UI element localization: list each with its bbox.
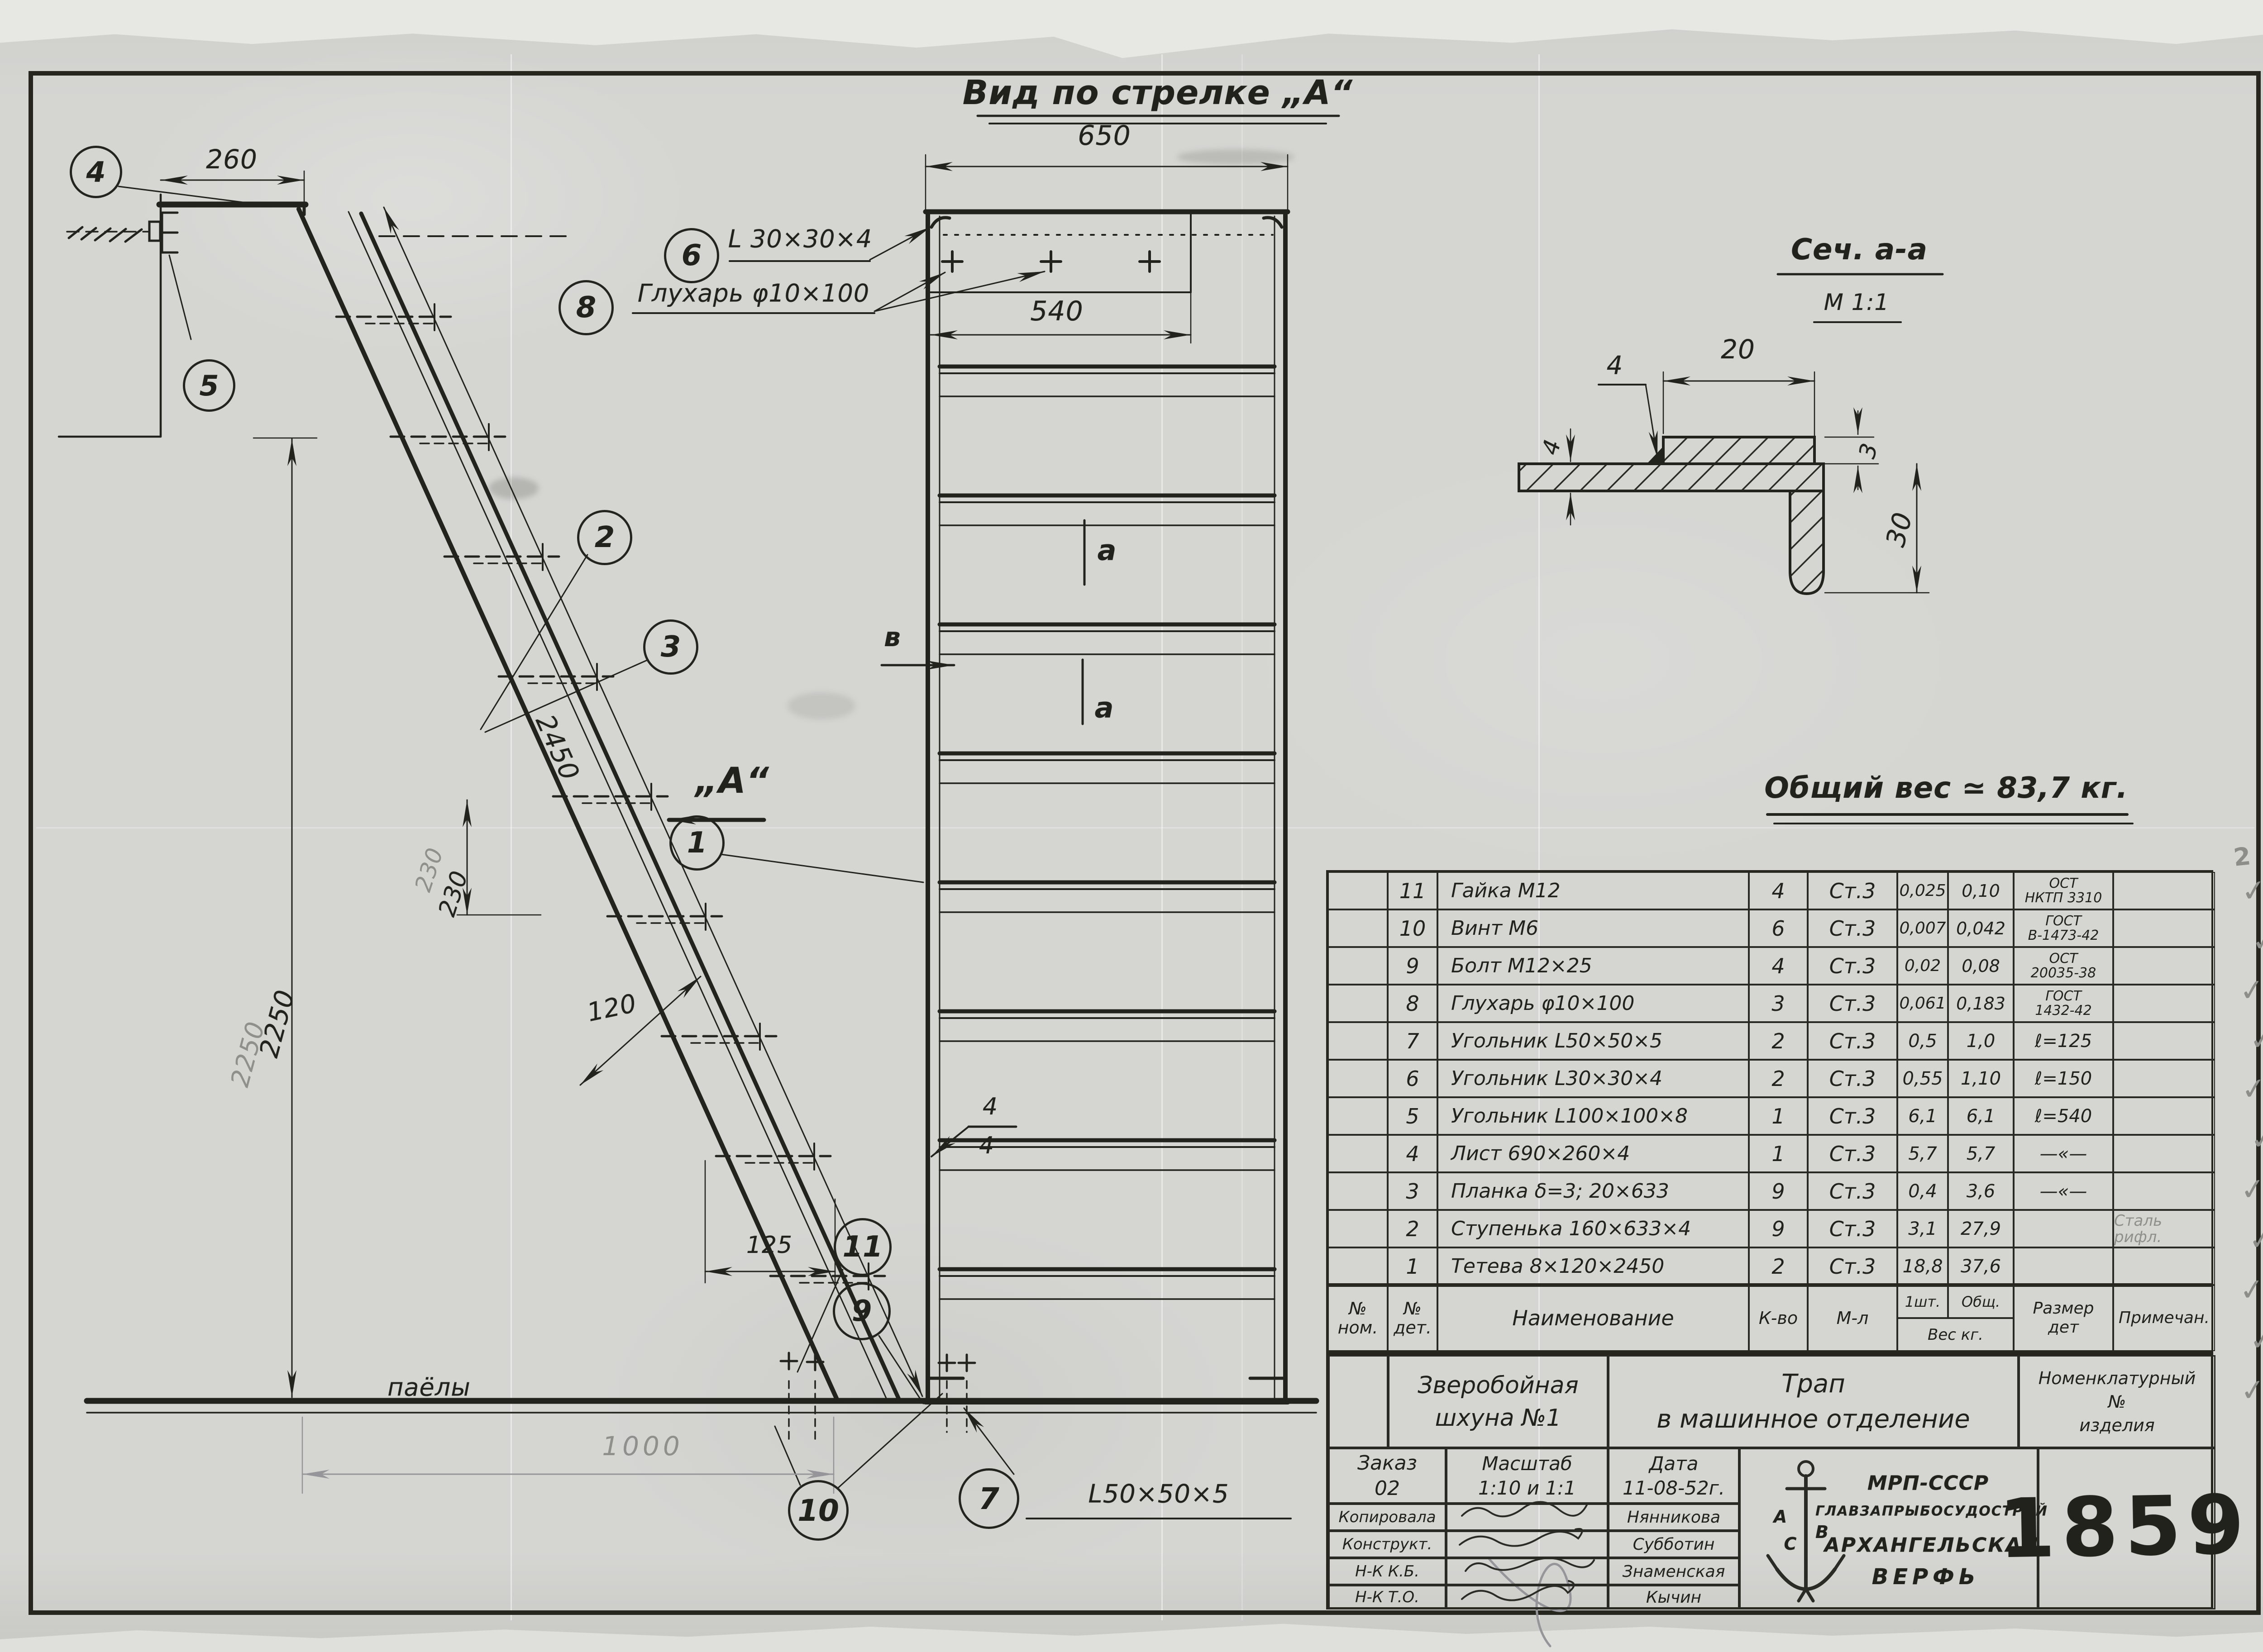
bom-cell: 4 xyxy=(1749,947,1808,985)
bom-header: №ном. №дет. Наименование К-во М-л 1шт. О… xyxy=(1326,1283,2213,1353)
view-arrow-label: „А“ xyxy=(695,761,769,801)
nomenclature-cell: Номенклатурный№изделия xyxy=(2019,1355,2215,1448)
bom-cell xyxy=(2014,1247,2113,1285)
bom-cell: 0,5 xyxy=(1897,1022,1948,1060)
bom-cell xyxy=(1328,1210,1388,1247)
bom-cell: 9 xyxy=(1388,947,1437,985)
bom-cell xyxy=(2113,985,2215,1022)
bom-cell: 9 xyxy=(1749,1210,1808,1247)
bom-cell: ОСТ20035-38 xyxy=(2014,947,2113,985)
bom-cell: ℓ=540 xyxy=(2014,1097,2113,1135)
bom-cell xyxy=(1328,1172,1388,1210)
bom-cell: Ст.3 xyxy=(1808,1060,1897,1097)
bom-cell: 4 xyxy=(1749,872,1808,909)
bom-cell xyxy=(1328,1247,1388,1285)
bom-cell: 18,8 xyxy=(1897,1247,1948,1285)
section-title: Сеч. а-а xyxy=(1791,233,1928,267)
balloon-10: 10 xyxy=(788,1480,849,1541)
mark-b: в xyxy=(884,622,901,652)
bom-cell: 7 xyxy=(1388,1022,1437,1060)
balloon-9: 9 xyxy=(833,1282,891,1340)
bom-cell: 3,1 xyxy=(1897,1210,1948,1247)
bom-cell: Ст.3 xyxy=(1808,909,1897,947)
sig-name: Знаменская xyxy=(1608,1558,1739,1585)
sig-signature xyxy=(1446,1558,1608,1585)
bom-cell: Ст.3 xyxy=(1808,1210,1897,1247)
bom-cell xyxy=(2113,1097,2215,1135)
bom-cell xyxy=(1328,947,1388,985)
bom-cell: 5 xyxy=(1388,1097,1437,1135)
bom-cell: Ст.3 xyxy=(1808,1097,1897,1135)
bom-cell xyxy=(2014,1210,2113,1247)
bom-cell: 4 xyxy=(1388,1135,1437,1172)
date-cell: Дата11-08-52г. xyxy=(1608,1448,1739,1504)
checkmark: ✓ xyxy=(2239,1171,2263,1208)
bom-cell: Тетева 8×120×2450 xyxy=(1437,1247,1749,1285)
bom-cell: 3 xyxy=(1749,985,1808,1022)
checkmark: ✓ xyxy=(2239,1070,2263,1107)
org-line-1: МРП-СССР xyxy=(1867,1472,1989,1495)
balloon-6: 6 xyxy=(664,228,719,283)
callout-6-label: L 30×30×4 xyxy=(728,225,873,253)
bom-cell: 5,7 xyxy=(1948,1135,2014,1172)
pencil-mark-2: 2 xyxy=(2232,842,2252,872)
balloon-3: 3 xyxy=(643,619,698,675)
bom-header-cell: Общ. xyxy=(1948,1285,2014,1318)
bom-cell: 9 xyxy=(1749,1172,1808,1210)
bom-cell: —«— xyxy=(2014,1172,2113,1210)
bom-cell: Ст.3 xyxy=(1808,872,1897,909)
bom-header-cell: Вес кг. xyxy=(1897,1318,2014,1351)
bom-cell: 0,10 xyxy=(1948,872,2014,909)
bom-cell: 0,55 xyxy=(1897,1060,1948,1097)
bill-of-materials: 11Гайка М124Ст.30,0250,10ОСТНКТП 3310 10… xyxy=(1326,870,2213,1287)
bom-cell: —«— xyxy=(2014,1135,2113,1172)
bom-cell: 6,1 xyxy=(1897,1097,1948,1135)
sig-name: Субботин xyxy=(1608,1531,1739,1558)
blueprint-sheet: Вид по стрелке „А“ 650 540 Сеч. а-а М 1:… xyxy=(0,0,2263,1652)
bom-cell xyxy=(1328,1060,1388,1097)
bom-cell: 0,007 xyxy=(1897,909,1948,947)
bom-cell: Ст.3 xyxy=(1808,1247,1897,1285)
dim-650: 650 xyxy=(1078,120,1131,152)
sig-role: Копировала xyxy=(1328,1504,1446,1531)
bom-cell: Угольник L30×30×4 xyxy=(1437,1060,1749,1097)
bom-cell: 6,1 xyxy=(1948,1097,2014,1135)
bom-cell: 0,02 xyxy=(1897,947,1948,985)
logo-letter-v: В xyxy=(1815,1522,1829,1542)
bom-header-cell: К-во xyxy=(1749,1285,1808,1351)
balloon-1: 1 xyxy=(669,815,725,871)
sig-role: Н-К К.Б. xyxy=(1328,1558,1446,1585)
callout-8-label: Глухарь φ10×100 xyxy=(638,279,870,308)
org-line-4: ВЕРФЬ xyxy=(1872,1564,1980,1590)
bom-cell: Ст.3 xyxy=(1808,1172,1897,1210)
bom-cell: 2 xyxy=(1388,1210,1437,1247)
bom-cell xyxy=(2113,947,2215,985)
dim-4-leader: 4 xyxy=(1607,351,1623,381)
balloon-7: 7 xyxy=(959,1468,1019,1529)
bom-cell xyxy=(1328,1022,1388,1060)
checkmark: ✓ xyxy=(2238,971,2263,1009)
bom-cell xyxy=(2113,1247,2215,1285)
dim-20: 20 xyxy=(1721,334,1755,365)
bom-cell: Угольник L100×100×8 xyxy=(1437,1097,1749,1135)
balloon-5: 5 xyxy=(183,359,235,412)
bom-cell: ℓ=150 xyxy=(2014,1060,2113,1097)
dim-125: 125 xyxy=(746,1232,793,1259)
bom-cell: 11 xyxy=(1388,872,1437,909)
dim-1000-pencil: 1000 xyxy=(602,1431,683,1462)
section-scale: М 1:1 xyxy=(1824,289,1890,315)
weld-note-bottom: 4 xyxy=(979,1132,994,1159)
bom-cell: 37,6 xyxy=(1948,1247,2014,1285)
bom-cell: 6 xyxy=(1749,909,1808,947)
bom-cell xyxy=(1328,985,1388,1022)
bom-cell xyxy=(2113,1172,2215,1210)
bom-header-cell: М-л xyxy=(1808,1285,1897,1351)
bom-cell: 2 xyxy=(1749,1060,1808,1097)
bom-cell: Гайка М12 xyxy=(1437,872,1749,909)
bom-cell: 0,042 xyxy=(1948,909,2014,947)
bom-cell: 0,061 xyxy=(1897,985,1948,1022)
checkmark: ✓ xyxy=(2239,1371,2263,1409)
sig-role: Конструкт. xyxy=(1328,1531,1446,1558)
section-mark-a1: a xyxy=(1098,534,1117,567)
bom-header-cell: Примечан. xyxy=(2113,1285,2215,1351)
bom-cell: 0,4 xyxy=(1897,1172,1948,1210)
bom-cell: Винт М6 xyxy=(1437,909,1749,947)
drawing-number: 1859 xyxy=(1998,1478,2252,1577)
bom-header-cell: №ном. xyxy=(1328,1285,1388,1351)
weld-note-top: 4 xyxy=(983,1093,998,1120)
bom-cell: 1 xyxy=(1749,1135,1808,1172)
bom-cell xyxy=(2113,1135,2215,1172)
floor-plates-label: паёлы xyxy=(387,1373,471,1402)
bom-cell: 1 xyxy=(1749,1097,1808,1135)
bom-cell-pencil-note: Сталь рифл. xyxy=(2113,1210,2215,1247)
bom-cell xyxy=(1328,909,1388,947)
bom-cell: Ст.3 xyxy=(1808,1022,1897,1060)
bom-cell: 1 xyxy=(1388,1247,1437,1285)
bom-cell xyxy=(2113,1022,2215,1060)
bom-cell: ГОСТ1432-42 xyxy=(2014,985,2113,1022)
bom-cell: ℓ=125 xyxy=(2014,1022,2113,1060)
section-mark-a2: a xyxy=(1095,691,1114,724)
bom-cell: Ступенька 160×633×4 xyxy=(1437,1210,1749,1247)
sig-name: Нянникова xyxy=(1608,1504,1739,1531)
bom-cell: Ст.3 xyxy=(1808,985,1897,1022)
bom-cell: Ст.3 xyxy=(1808,1135,1897,1172)
bom-cell: 1,0 xyxy=(1948,1022,2014,1060)
bom-cell: 27,9 xyxy=(1948,1210,2014,1247)
drawing-title: Трапв машинное отделение xyxy=(1608,1355,2019,1448)
balloon-8: 8 xyxy=(559,280,614,335)
logo-letter-a: А xyxy=(1774,1507,1787,1527)
bom-cell: Планка δ=3; 20×633 xyxy=(1437,1172,1749,1210)
sig-role: Н-К Т.О. xyxy=(1328,1585,1446,1609)
bom-cell xyxy=(1328,1135,1388,1172)
balloon-2: 2 xyxy=(577,510,632,565)
bom-cell: Болт М12×25 xyxy=(1437,947,1749,985)
bom-cell: 2 xyxy=(1749,1247,1808,1285)
bom-cell: 2 xyxy=(1749,1022,1808,1060)
bom-cell: ОСТНКТП 3310 xyxy=(2014,872,2113,909)
bom-cell: Ст.3 xyxy=(1808,947,1897,985)
total-weight-note: Общий вес ≃ 83,7 кг. xyxy=(1764,771,2128,805)
bom-cell xyxy=(1328,872,1388,909)
bom-header-cell: Размердет xyxy=(2014,1285,2113,1351)
bom-cell: Глухарь φ10×100 xyxy=(1437,985,1749,1022)
bom-cell: 6 xyxy=(1388,1060,1437,1097)
sig-name: Кычин xyxy=(1608,1585,1739,1609)
bom-cell: 5,7 xyxy=(1897,1135,1948,1172)
bom-header-cell: №дет. xyxy=(1388,1285,1437,1351)
order-cell: Заказ02 xyxy=(1328,1448,1446,1504)
bom-cell xyxy=(1328,1097,1388,1135)
bom-cell: 10 xyxy=(1388,909,1437,947)
bom-cell xyxy=(2113,909,2215,947)
sig-signature xyxy=(1446,1531,1608,1558)
bom-cell: Лист 690×260×4 xyxy=(1437,1135,1749,1172)
bom-cell: 0,183 xyxy=(1948,985,2014,1022)
bom-cell xyxy=(2113,872,2215,909)
bom-header-cell: Наименование xyxy=(1437,1285,1749,1351)
bom-cell: 1,10 xyxy=(1948,1060,2014,1097)
project-name: Зверобойнаяшхуна №1 xyxy=(1388,1355,1608,1448)
sig-signature xyxy=(1446,1585,1608,1609)
checkmark: ✓ xyxy=(2238,1271,2263,1308)
scale-cell: Масштаб1:10 и 1:1 xyxy=(1446,1448,1608,1504)
dim-540: 540 xyxy=(1030,295,1084,327)
checkmark: ✓ xyxy=(2239,872,2263,909)
bom-cell xyxy=(2113,1060,2215,1097)
bom-cell: 3 xyxy=(1388,1172,1437,1210)
view-a-title: Вид по стрелке „А“ xyxy=(963,73,1353,112)
dim-260: 260 xyxy=(206,144,258,175)
callout-7-label: L50×50×5 xyxy=(1088,1480,1229,1509)
bom-cell: 3,6 xyxy=(1948,1172,2014,1210)
title-block-cell xyxy=(1328,1355,1388,1448)
bom-cell: 0,08 xyxy=(1948,947,2014,985)
balloon-11: 11 xyxy=(834,1218,892,1276)
bom-cell: 0,025 xyxy=(1897,872,1948,909)
bom-cell: 8 xyxy=(1388,985,1437,1022)
bom-cell: ГОСТВ-1473-42 xyxy=(2014,909,2113,947)
sig-signature xyxy=(1446,1504,1608,1531)
logo-letter-s: С xyxy=(1784,1534,1797,1554)
bom-cell: Угольник L50×50×5 xyxy=(1437,1022,1749,1060)
bom-header-cell: 1шт. xyxy=(1897,1285,1948,1318)
balloon-4: 4 xyxy=(70,146,122,198)
